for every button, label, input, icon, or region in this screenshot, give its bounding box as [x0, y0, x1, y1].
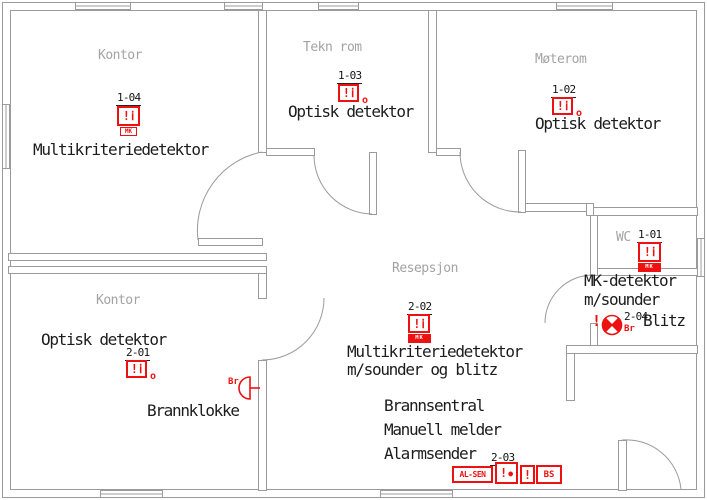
wall-segment — [526, 204, 594, 212]
detector-glyph: ! — [644, 246, 651, 258]
device-name-1-01-line1: MK-detektor — [584, 271, 676, 290]
fire-panel-bang-symbol: ! — [520, 465, 535, 484]
fire-bell-icon — [239, 377, 260, 399]
floor-plan: Kontor Tekn rom Møterom Resepsjon WC Kon… — [0, 0, 707, 500]
blitz-br-suffix: Br — [624, 325, 635, 334]
device-name-brannklokke: Brannklokke — [147, 401, 239, 420]
wall-segment — [437, 149, 461, 156]
manual-call-point-symbol: ! ● — [495, 462, 518, 484]
room-label-kontor-2: Kontor — [96, 293, 140, 308]
detector-box: ! ⅰ — [117, 106, 140, 126]
device-id-1-02: 1-02 — [551, 84, 576, 98]
detector-box: ! ⅰ — [338, 84, 359, 102]
device-name-2-02-line2: m/sounder og blitz — [347, 360, 497, 379]
device-name-2-02-line1: Multikriteriedetektor — [347, 342, 522, 361]
bell-br-suffix: Br — [228, 378, 239, 387]
detector-glyph: ⅰ — [421, 318, 424, 330]
room-label-moterom: Møterom — [535, 52, 586, 67]
detector-glyph: ! — [413, 318, 420, 330]
fire-panel-bs-symbol: BS — [536, 465, 562, 484]
device-id-2-01: 2-01 — [125, 347, 150, 361]
detector-glyph: ! — [131, 363, 138, 375]
wall-segment — [267, 149, 315, 156]
door-arc — [197, 152, 262, 240]
detector-glyph: ! — [557, 100, 564, 112]
room-label-kontor-1: Kontor — [98, 48, 142, 63]
room-label-wc: WC — [616, 230, 631, 245]
window — [698, 239, 705, 277]
device-name-2-04: Blitz — [643, 311, 685, 330]
wall-segment — [591, 216, 598, 276]
detector-box: ! ⅰ — [552, 97, 573, 115]
window — [3, 105, 10, 169]
door-arc — [460, 152, 521, 212]
door-leaf — [519, 151, 526, 213]
room-label-resepsjon: Resepsjon — [392, 261, 458, 276]
window — [225, 3, 263, 10]
wall-segment — [429, 11, 437, 153]
mcp-bang-glyph: ! — [500, 466, 507, 480]
door-arc — [262, 298, 324, 360]
detector-glyph: ⅰ — [139, 363, 142, 375]
detector-glyph: ⅰ — [351, 87, 354, 99]
door-leaf — [370, 153, 377, 215]
window — [557, 3, 613, 10]
device-name-1-04: Multikriteriedetektor — [33, 140, 208, 159]
wall-segment — [567, 354, 575, 401]
detector-symbol-2-01: ! ⅰ o — [126, 360, 147, 378]
detector-box: ! ⅰ — [408, 314, 430, 333]
wall-segment — [259, 361, 267, 491]
detector-box: ! ⅰ — [126, 360, 147, 378]
detector-tag: MK — [120, 127, 137, 136]
wall-segment — [259, 274, 267, 299]
wall-segment — [587, 204, 594, 216]
detector-symbol-1-03: ! ⅰ o — [338, 84, 359, 102]
window — [319, 3, 359, 10]
door-arc — [622, 440, 681, 489]
wall-segment — [567, 346, 698, 354]
device-id-1-01: 1-01 — [637, 229, 662, 243]
device-id-1-03: 1-03 — [337, 70, 362, 84]
detector-glyph: ! — [123, 110, 130, 122]
mcp-dot-glyph: ● — [508, 469, 513, 478]
detector-symbol-2-02: ! ⅰ MK — [408, 314, 431, 343]
device-name-2-03-line3: Alarmsender — [384, 444, 476, 463]
door-leaf — [619, 441, 627, 491]
door-arc — [314, 155, 372, 214]
detector-glyph: ⅰ — [652, 246, 655, 258]
detector-glyph: ⅰ — [131, 110, 134, 122]
device-name-1-01-line2: m/sounder — [584, 290, 659, 309]
room-label-tekn-rom: Tekn rom — [303, 40, 362, 55]
device-name-2-03-line1: Brannsentral — [384, 396, 484, 415]
device-name-1-03: Optisk detektor — [288, 102, 413, 121]
window — [101, 491, 163, 498]
detector-box: ! ⅰ — [638, 242, 661, 262]
device-id-1-04: 1-04 — [116, 92, 141, 106]
blitz-bang-glyph: ! — [592, 314, 601, 329]
strobe-icon — [603, 316, 622, 335]
wall-segment — [9, 267, 267, 274]
detector-symbol-1-01: ! ⅰ MK — [638, 242, 661, 272]
window — [381, 491, 453, 498]
detector-symbol-1-02: ! ⅰ o — [552, 97, 573, 115]
door-leaf — [199, 239, 263, 246]
device-name-2-03-line2: Manuell melder — [384, 420, 501, 439]
detector-glyph: ⅰ — [565, 100, 568, 112]
alarm-sender-symbol: AL-SEN — [452, 466, 493, 483]
wall-segment — [594, 208, 698, 216]
window — [76, 3, 131, 10]
detector-symbol-1-04: ! ⅰ MK — [117, 106, 140, 136]
detector-suffix: o — [150, 372, 156, 382]
wall-segment — [9, 254, 267, 261]
device-name-1-02: Optisk detektor — [535, 114, 660, 133]
wall-segment — [259, 11, 267, 153]
detector-glyph: ! — [343, 87, 350, 99]
device-id-2-02: 2-02 — [407, 301, 432, 315]
